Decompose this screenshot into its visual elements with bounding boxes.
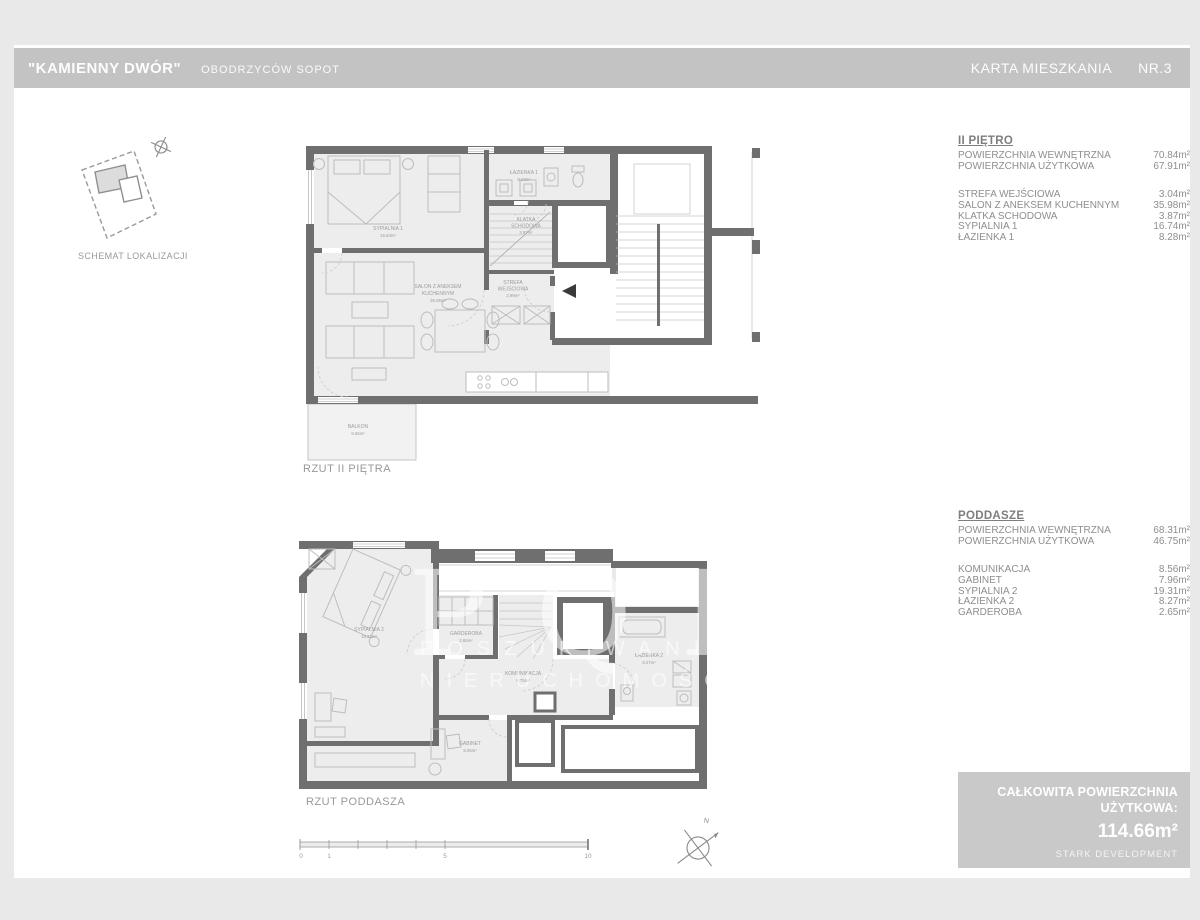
label-lazienka2-area: 8.27m² xyxy=(642,660,656,665)
total-area-box: CAŁKOWITA POWIERZCHNIA UŻYTKOWA: 114.66m… xyxy=(958,772,1190,868)
area-row: ŁAZIENKA 18.28m² xyxy=(958,233,1190,244)
card-number: NR.3 xyxy=(1138,60,1172,76)
row-value: 2.65m² xyxy=(1159,608,1190,619)
label-salon-area: 36.05m² xyxy=(430,298,446,303)
label-klatka-area: 3.87m² xyxy=(519,230,533,235)
location-schematic xyxy=(62,130,182,248)
label-strefa: STREFA xyxy=(503,280,523,286)
scale-bar: 0 1 5 10 xyxy=(298,838,598,862)
label-strefa2: WEJŚCIOWA xyxy=(498,285,529,293)
area-table-attic: PODDASZE POWIERZCHNIA WEWNĘTRZNA68.31m² … xyxy=(958,510,1190,619)
row-value: 46.75m² xyxy=(1153,537,1190,548)
label-sypialnia1: SYPIALNIA 1 xyxy=(373,226,403,232)
scale-tick-10: 10 xyxy=(584,853,592,860)
label-klatka2: SCHODOWA xyxy=(511,224,541,230)
project-name: "KAMIENNY DWÓR" xyxy=(28,60,181,77)
floor-plan-attic: SYPIALNIA 2 19.31m² GARDEROBA 2.65m² KOM… xyxy=(295,533,715,795)
total-line1: CAŁKOWITA POWIERZCHNIA xyxy=(968,784,1178,800)
schematic-caption: SCHEMAT LOKALIZACJI xyxy=(78,251,188,261)
attic-window-left2 xyxy=(299,683,307,719)
developer-brand: STARK DEVELOPMENT xyxy=(1056,849,1178,860)
row-label: POWIERZCHNIA UŻYTKOWA xyxy=(958,537,1094,548)
side-room-small xyxy=(517,721,553,765)
window-top-1 xyxy=(468,147,494,153)
floor-plan-upper: SYPIALNIA 1 16.84m² ŁAZIENKA 1 8.23m² KL… xyxy=(300,140,760,470)
north-label: N xyxy=(703,818,709,826)
label-balkon-area: 6.66m² xyxy=(351,431,365,436)
plan-caption-attic: RZUT PODDASZA xyxy=(306,796,405,808)
attic-window-left1 xyxy=(299,593,307,633)
label-gabinet-area: 8.05m² xyxy=(463,748,477,753)
window-top-2 xyxy=(544,147,564,153)
plan-caption-upper: RZUT II PIĘTRA xyxy=(303,463,391,475)
plot-boundary xyxy=(82,151,156,238)
floor-title-upper: II PIĘTRO xyxy=(958,135,1190,147)
row-label: GARDEROBA xyxy=(958,608,1022,619)
label-lazienka1: ŁAZIENKA 1 xyxy=(510,170,538,176)
area-table-upper: II PIĘTRO POWIERZCHNIA WEWNĘTRZNA70.84m²… xyxy=(958,135,1190,244)
label-sypialnia2-area: 19.31m² xyxy=(361,634,377,639)
label-sypialnia2: SYPIALNIA 2 xyxy=(354,627,384,633)
side-room-tiny xyxy=(535,693,555,711)
label-gabinet: GABINET xyxy=(459,741,481,747)
label-lazienka1-area: 8.23m² xyxy=(517,177,531,182)
header-bar: "KAMIENNY DWÓR" OBODRZYCÓW SOPOT KARTA M… xyxy=(14,48,1190,88)
document-page: "KAMIENNY DWÓR" OBODRZYCÓW SOPOT KARTA M… xyxy=(14,45,1190,878)
label-komunikacja: KOMUNIKACJA xyxy=(505,671,542,677)
label-garderoba: GARDEROBA xyxy=(450,631,483,637)
schematic-compass-icon xyxy=(146,132,175,161)
label-strefa-area: 2.99m² xyxy=(506,293,520,298)
label-komunikacja-area: 8.75m² xyxy=(516,678,530,683)
attic-window-top xyxy=(353,542,405,548)
label-balkon: BALKON xyxy=(348,424,369,430)
total-line2: UŻYTKOWA: xyxy=(968,800,1178,816)
label-lazienka2: ŁAZIENKA 2 xyxy=(635,653,663,659)
row-label: ŁAZIENKA 1 xyxy=(958,233,1014,244)
scale-tick-1: 1 xyxy=(327,853,331,860)
label-garderoba-area: 2.65m² xyxy=(459,638,473,643)
area-row: POWIERZCHNIA UŻYTKOWA46.75m² xyxy=(958,537,1190,548)
row-value: 8.28m² xyxy=(1159,233,1190,244)
header-left: "KAMIENNY DWÓR" OBODRZYCÓW SOPOT xyxy=(14,60,340,77)
area-row: POWIERZCHNIA UŻYTKOWA67.91m² xyxy=(958,162,1190,173)
scale-tick-0: 0 xyxy=(299,853,303,860)
building-outline xyxy=(119,176,142,202)
scale-tick-5: 5 xyxy=(443,853,447,860)
card-title: KARTA MIESZKANIA xyxy=(971,60,1112,76)
attic-window-band2 xyxy=(545,551,575,561)
north-compass: N xyxy=(668,808,728,878)
total-value: 114.66m² xyxy=(968,821,1178,843)
area-row: GARDEROBA2.65m² xyxy=(958,608,1190,619)
label-salon: SALON Z ANEKSEM xyxy=(415,284,462,290)
label-sypialnia1-area: 16.84m² xyxy=(380,233,396,238)
row-value: 67.91m² xyxy=(1153,162,1190,173)
header-right: KARTA MIESZKANIA NR.3 xyxy=(971,60,1190,76)
project-location: OBODRZYCÓW SOPOT xyxy=(201,64,340,76)
window-left xyxy=(306,170,314,224)
balcony-door xyxy=(318,397,358,403)
side-room-large xyxy=(563,727,697,771)
floor-title-attic: PODDASZE xyxy=(958,510,1190,522)
label-salon2: KUCHENNYM xyxy=(422,291,454,297)
row-label: POWIERZCHNIA UŻYTKOWA xyxy=(958,162,1094,173)
attic-window-band1 xyxy=(475,551,515,561)
label-klatka: KLATKA xyxy=(517,217,536,223)
